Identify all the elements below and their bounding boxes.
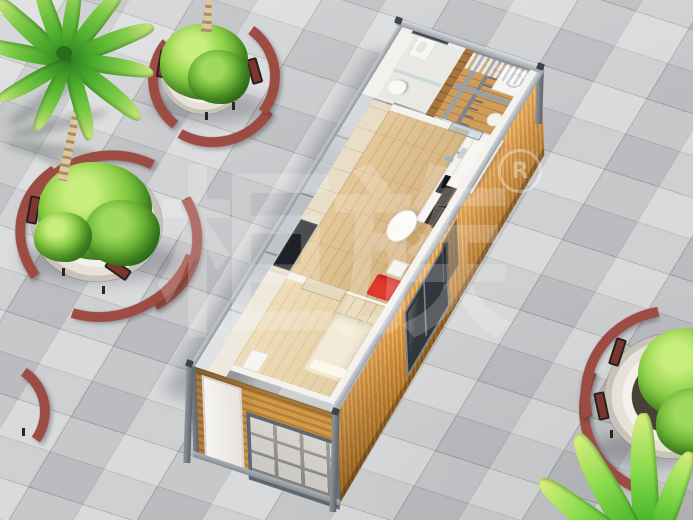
watermark-text: 柜族 [128, 162, 532, 353]
registered-trademark-icon: R [498, 149, 542, 193]
plaza-scene: 柜族 R [0, 0, 693, 520]
registered-trademark-letter: R [512, 159, 529, 184]
